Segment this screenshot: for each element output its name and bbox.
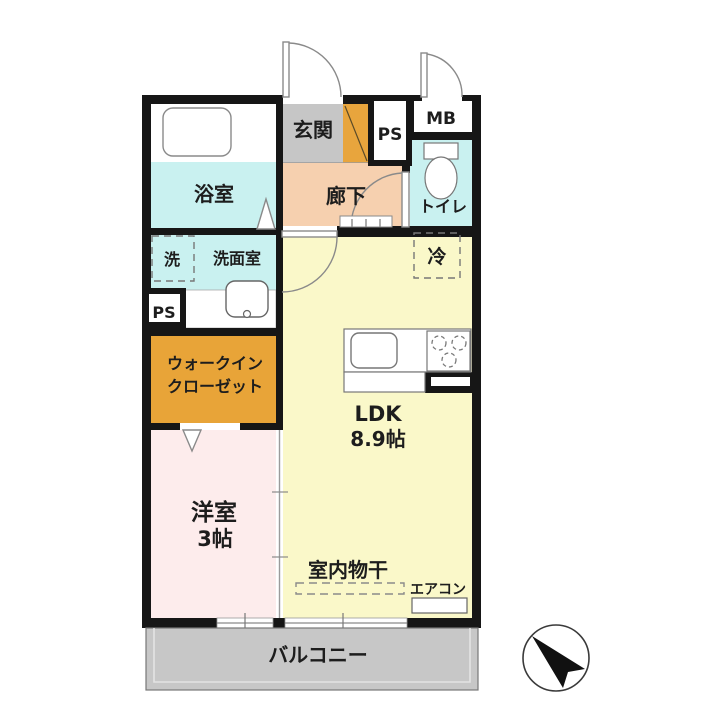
toilet-door-leaf <box>402 172 409 227</box>
label-ldk-size: 8.9帖 <box>350 427 405 451</box>
kitchen-counter-lower <box>344 372 425 392</box>
ldk-door-leaf <box>282 231 337 237</box>
label-balcony: バルコニー <box>268 643 368 667</box>
label-entrance: 玄関 <box>293 118 333 142</box>
wall-bottom-right <box>407 618 481 628</box>
wic-door-opening <box>180 423 240 430</box>
aircon-unit-box <box>412 598 467 613</box>
entrance-door-opening <box>283 95 343 104</box>
floor-plan-drawing: 玄関 廊下 浴室 洗面室 洗 PS MB トイレ 冷 PS ウォークイン クロー… <box>0 0 720 720</box>
label-pipe-space-side: PS <box>152 303 175 322</box>
entrance-door-leaf <box>283 42 289 97</box>
label-wic-line1: ウォークイン <box>167 354 263 373</box>
wall-top-left <box>142 95 283 104</box>
kitchen-wall-slot <box>431 377 470 386</box>
label-western-room-size: 3帖 <box>197 527 233 551</box>
label-washer-space: 洗 <box>164 250 180 269</box>
label-aircon: エアコン <box>410 582 466 598</box>
wall-left <box>142 95 151 628</box>
label-hallway: 廊下 <box>326 184 366 208</box>
label-meter-box: MB <box>426 109 456 129</box>
wall-bottom-left <box>142 618 217 628</box>
entrance-door-arc <box>289 43 341 97</box>
washbasin-drain-icon <box>244 311 251 318</box>
wall-bottom-mid <box>273 618 285 628</box>
label-toilet: トイレ <box>419 197 467 216</box>
label-western-room: 洋室 <box>191 499 237 526</box>
kitchen-sink-icon <box>351 333 397 368</box>
label-indoor-drying: 室内物干 <box>308 558 388 582</box>
wall-center-vertical <box>276 95 283 430</box>
toilet-bowl-icon <box>425 157 457 199</box>
meter-box-door-opening <box>422 95 462 104</box>
compass <box>523 625 589 691</box>
meter-box-door-leaf <box>421 53 427 97</box>
label-wic-line2: クローゼット <box>167 377 263 396</box>
wall-washroom-wic <box>142 328 283 336</box>
label-fridge-space: 冷 <box>427 245 446 268</box>
label-bathroom: 浴室 <box>194 182 234 206</box>
label-washroom: 洗面室 <box>213 249 261 268</box>
wall-right <box>472 95 481 627</box>
label-pipe-space-top: PS <box>378 125 403 145</box>
floor-plan-page: 玄関 廊下 浴室 洗面室 洗 PS MB トイレ 冷 PS ウォークイン クロー… <box>0 0 720 720</box>
bathtub-icon <box>163 108 231 156</box>
label-ldk: LDK <box>354 402 402 426</box>
meter-box-door-arc <box>427 54 462 97</box>
